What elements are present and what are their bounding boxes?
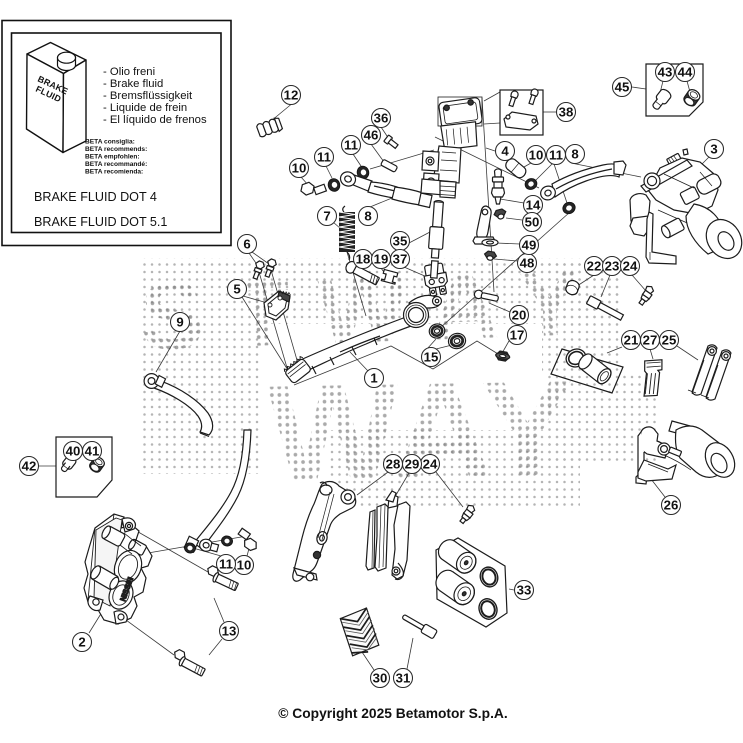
svg-text:30: 30 [373, 671, 388, 686]
svg-text:© Copyright 2025 Betamotor S.p: © Copyright 2025 Betamotor S.p.A. [278, 706, 507, 721]
svg-text:9: 9 [176, 315, 183, 330]
svg-text:42: 42 [22, 459, 37, 474]
svg-text:18: 18 [356, 252, 371, 267]
svg-text:8: 8 [364, 209, 371, 224]
svg-text:45: 45 [615, 80, 630, 95]
svg-text:19: 19 [374, 252, 389, 267]
svg-text:29: 29 [405, 457, 420, 472]
svg-text:50: 50 [525, 215, 540, 230]
svg-text:- Bremsflüssigkeit: - Bremsflüssigkeit [103, 90, 193, 102]
svg-text:17: 17 [510, 328, 525, 343]
svg-text:BETA empfohlen:: BETA empfohlen: [85, 154, 140, 161]
svg-text:11: 11 [317, 150, 331, 165]
svg-text:BRAKE FLUID DOT 4: BRAKE FLUID DOT 4 [34, 190, 157, 204]
svg-text:1: 1 [370, 371, 377, 386]
svg-text:12: 12 [284, 88, 299, 103]
svg-text:41: 41 [85, 444, 100, 459]
svg-text:4: 4 [501, 144, 509, 159]
svg-text:24: 24 [423, 457, 438, 472]
svg-text:27: 27 [643, 333, 658, 348]
svg-text:44: 44 [678, 65, 693, 80]
svg-text:38: 38 [559, 105, 574, 120]
svg-text:11: 11 [219, 557, 233, 572]
svg-text:33: 33 [517, 583, 532, 598]
svg-text:BETA recommends:: BETA recommends: [85, 146, 147, 153]
svg-text:20: 20 [512, 308, 527, 323]
svg-text:21: 21 [624, 333, 639, 348]
svg-text:BETA recomienda:: BETA recomienda: [85, 169, 143, 176]
svg-text:- Brake fluid: - Brake fluid [103, 78, 163, 90]
svg-text:37: 37 [393, 252, 408, 267]
svg-text:36: 36 [374, 111, 389, 126]
svg-text:13: 13 [222, 624, 237, 639]
svg-text:WAY: WAY [267, 352, 577, 511]
svg-text:BRAKE FLUID DOT 5.1: BRAKE FLUID DOT 5.1 [34, 215, 167, 229]
svg-text:35: 35 [393, 234, 408, 249]
svg-text:40: 40 [66, 444, 81, 459]
svg-text:3: 3 [710, 142, 717, 157]
svg-text:49: 49 [522, 238, 537, 253]
svg-text:6: 6 [243, 237, 250, 252]
svg-text:- El líquido de frenos: - El líquido de frenos [103, 114, 207, 126]
svg-text:31: 31 [396, 671, 411, 686]
svg-text:26: 26 [664, 498, 679, 513]
svg-text:10: 10 [292, 161, 307, 176]
svg-text:7: 7 [323, 209, 330, 224]
svg-text:11: 11 [344, 138, 358, 153]
svg-text:46: 46 [364, 128, 379, 143]
svg-text:BETA consiglia:: BETA consiglia: [85, 139, 135, 146]
svg-text:- Liquide de frein: - Liquide de frein [103, 102, 187, 114]
svg-text:- Olio freni: - Olio freni [103, 66, 155, 78]
svg-text:5: 5 [233, 282, 240, 297]
svg-text:10: 10 [237, 558, 252, 573]
svg-text:11: 11 [549, 148, 563, 163]
svg-text:BETA recommandé:: BETA recommandé: [85, 161, 147, 168]
svg-text:10: 10 [529, 148, 544, 163]
svg-text:22: 22 [587, 259, 602, 274]
svg-text:28: 28 [386, 457, 401, 472]
svg-text:25: 25 [662, 333, 677, 348]
svg-text:8: 8 [571, 147, 578, 162]
svg-text:48: 48 [520, 256, 535, 271]
svg-text:24: 24 [623, 259, 638, 274]
svg-text:14: 14 [526, 198, 541, 213]
svg-text:15: 15 [424, 350, 439, 365]
svg-text:2: 2 [78, 635, 85, 650]
svg-text:43: 43 [658, 65, 673, 80]
svg-text:23: 23 [605, 259, 620, 274]
